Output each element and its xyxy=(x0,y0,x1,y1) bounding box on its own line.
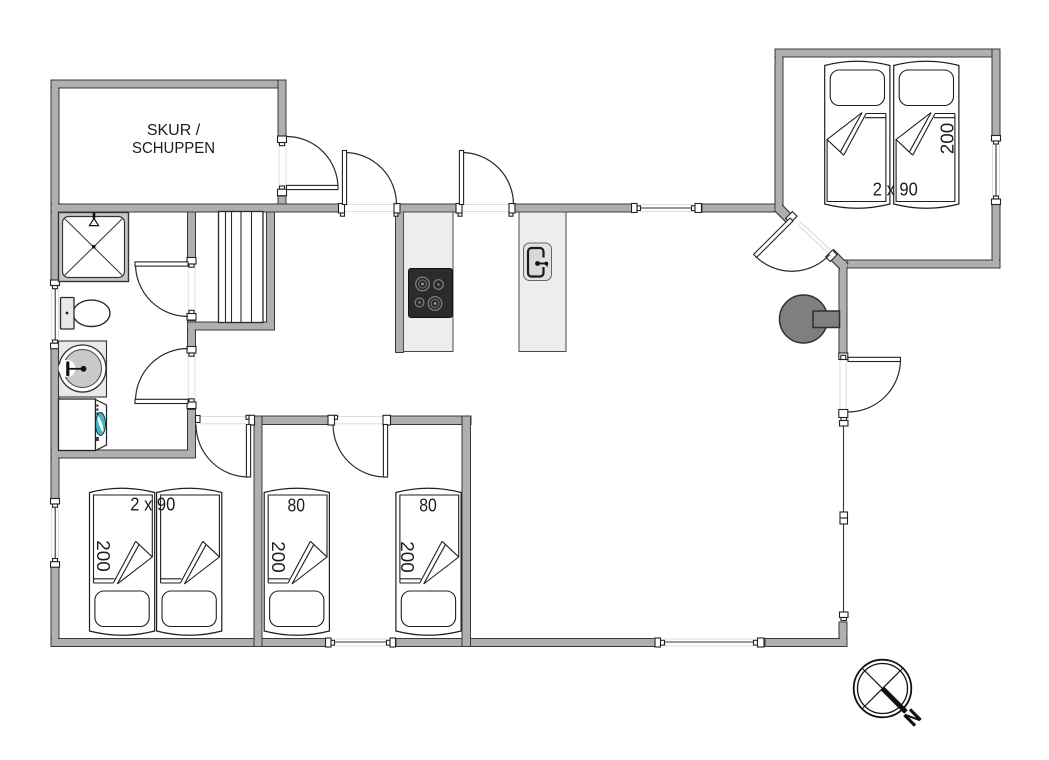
svg-text:200: 200 xyxy=(93,540,113,572)
svg-text:200: 200 xyxy=(938,123,958,155)
svg-text:SKUR /: SKUR / xyxy=(147,122,201,139)
svg-text:80: 80 xyxy=(419,496,437,516)
svg-text:2 x 90: 2 x 90 xyxy=(130,495,175,515)
svg-text:200: 200 xyxy=(397,541,417,573)
svg-text:80: 80 xyxy=(288,496,306,516)
svg-text:SCHUPPEN: SCHUPPEN xyxy=(132,140,215,157)
svg-text:2 x 90: 2 x 90 xyxy=(873,180,918,200)
svg-text:200: 200 xyxy=(268,541,288,573)
